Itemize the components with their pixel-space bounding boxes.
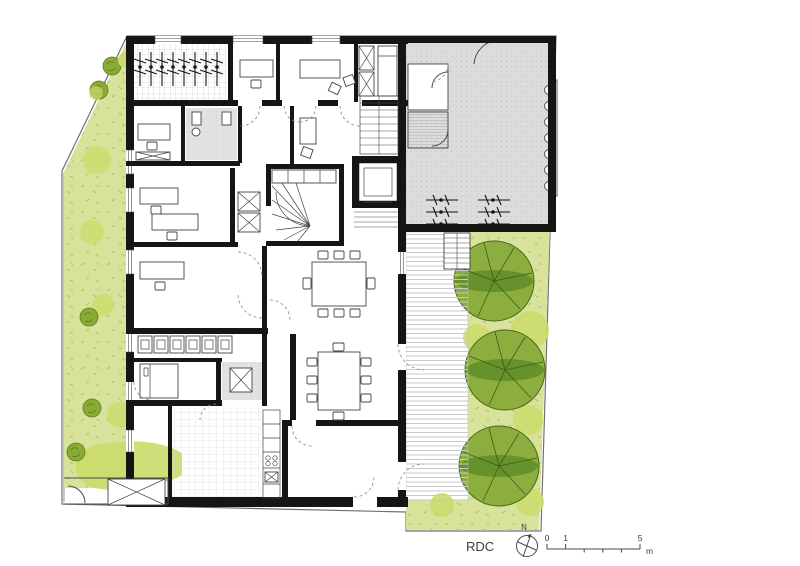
bed	[140, 364, 178, 398]
vestibule	[408, 64, 448, 110]
entrance-courtyard	[406, 40, 557, 229]
dining-table	[307, 343, 371, 420]
kitchen-units	[263, 410, 280, 498]
office-desk	[140, 188, 198, 240]
scale-bar: 0 1 5 m	[545, 533, 653, 556]
closet-shaft	[359, 46, 374, 96]
north-label: N	[521, 523, 527, 532]
tree-icon	[465, 330, 545, 410]
bush-icon	[80, 308, 98, 326]
deck-terrace	[406, 232, 470, 500]
wc-room	[222, 362, 262, 400]
bush-icon	[67, 443, 85, 461]
dining-table	[303, 251, 375, 317]
closet-shaft	[238, 192, 260, 232]
scale-tick-5: 5	[638, 533, 643, 543]
exterior-steps	[444, 233, 470, 269]
scale-unit: m	[646, 546, 653, 556]
storage-box	[108, 479, 165, 505]
bush-icon	[83, 399, 101, 417]
elevator	[358, 162, 398, 202]
office-desk	[300, 60, 355, 95]
floor-label: RDC	[466, 539, 494, 554]
tree-icon	[459, 426, 539, 506]
gate-arc	[68, 486, 85, 503]
locker-row	[138, 336, 232, 353]
wc-room	[186, 108, 237, 160]
scale-tick-1: 1	[563, 533, 568, 543]
tiled-hall	[172, 406, 262, 497]
scale-tick-0: 0	[545, 533, 550, 543]
bike-storage-room	[134, 44, 226, 100]
office-desk	[136, 124, 170, 160]
lower-steps	[354, 212, 398, 227]
office-desk	[240, 60, 273, 88]
office-desk	[140, 262, 184, 290]
floor-plan-drawing: RDC N 0 1 5 m	[0, 0, 800, 566]
bed	[378, 46, 397, 96]
winder-staircase	[272, 170, 336, 241]
office-desk	[300, 118, 316, 158]
floor-plan-page: RDC N 0 1 5 m	[0, 0, 800, 566]
